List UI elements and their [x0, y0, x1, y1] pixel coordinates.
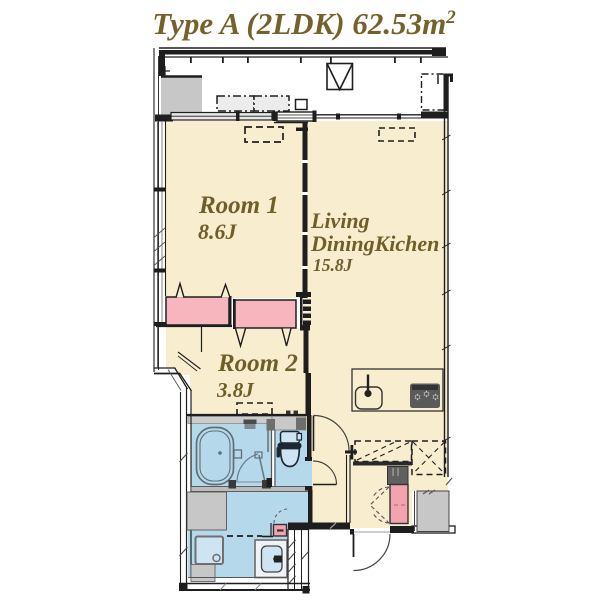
svg-text:DiningKichen: DiningKichen — [310, 231, 439, 256]
svg-text:Living: Living — [310, 208, 370, 233]
svg-text:3.8J: 3.8J — [216, 378, 255, 402]
svg-text:15.8J: 15.8J — [313, 255, 354, 275]
svg-text:Room 2: Room 2 — [217, 350, 298, 377]
svg-text:8.6J: 8.6J — [198, 219, 238, 244]
svg-text:Room 1: Room 1 — [198, 192, 279, 219]
svg-text:Type A (2LDK) 62.53m2: Type A (2LDK) 62.53m2 — [152, 6, 456, 41]
